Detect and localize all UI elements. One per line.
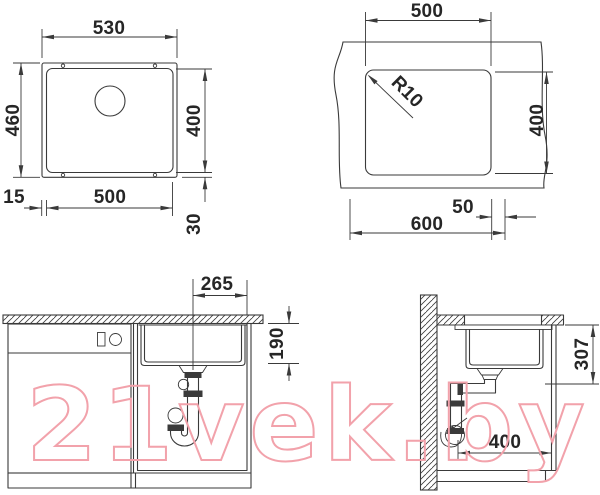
dim-label-cabinet-width: 600 (411, 214, 444, 235)
worktop-side-section (437, 315, 564, 330)
sink-dimension-drawing: 530 460 400 500 15 (0, 0, 600, 495)
dim-label-drain-offset: 265 (201, 274, 234, 295)
dim-label-bowl-height: 190 (267, 327, 288, 360)
mount-hole (153, 173, 156, 176)
watermark-text: 21vek.by (26, 366, 590, 485)
dim-label-cutout-width: 500 (411, 1, 444, 22)
mount-hole (61, 64, 64, 67)
dim-label-rim-bottom: 30 (184, 213, 205, 235)
dim-outer-depth: 460 (3, 63, 40, 177)
dim-label-outer-width: 530 (93, 18, 126, 39)
dim-label-bowl-width: 500 (94, 187, 127, 208)
dim-bowl-depth: 400 (176, 69, 212, 173)
sink-outer-edge (42, 63, 177, 177)
dim-label-bowl-depth: 400 (184, 104, 205, 137)
mount-hole (61, 173, 64, 176)
worktop-torn-outline (334, 42, 547, 188)
watermark: 21vek.by (26, 366, 590, 485)
sink-bowl-side-section (466, 330, 543, 369)
dim-bowl-width: 500 (47, 182, 173, 216)
mount-hole (153, 64, 156, 67)
dim-label-outer-depth: 460 (3, 104, 24, 137)
sink-flange (455, 325, 552, 330)
technical-drawing-sheet: 530 460 400 500 15 (0, 0, 600, 495)
dim-outer-width: 530 (42, 18, 177, 58)
dim-label-edge-distance: 50 (452, 197, 474, 218)
dim-label-rim-left: 15 (3, 187, 25, 208)
dim-rim-left: 15 (3, 187, 42, 216)
worktop-section (3, 315, 263, 324)
dim-rim-bottom: 30 (182, 177, 212, 235)
dim-label-cutout-depth: 400 (527, 104, 548, 137)
dim-cabinet-width: 600 (350, 199, 505, 240)
sink-top-view: 530 460 400 500 15 (3, 18, 212, 235)
worktop-cutout-view: 500 R10 400 50 600 (334, 1, 553, 240)
